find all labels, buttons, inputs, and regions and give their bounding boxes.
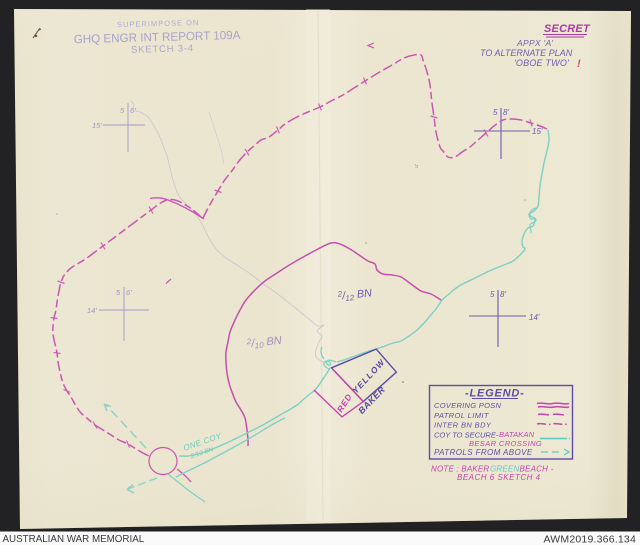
svg-text:BATAKAN: BATAKAN xyxy=(499,430,535,439)
svg-text:6': 6' xyxy=(126,288,132,297)
svg-text:AUSTRALIAN WAR MEMORIAL: AUSTRALIAN WAR MEMORIAL xyxy=(3,534,145,545)
svg-text:PATROLS FROM ABOVE: PATROLS FROM ABOVE xyxy=(434,448,533,457)
svg-text:INTER BN BDY: INTER BN BDY xyxy=(434,421,492,430)
svg-text:8': 8' xyxy=(500,290,506,299)
svg-text:15': 15' xyxy=(532,127,543,136)
svg-text:AWM2019.366.134: AWM2019.366.134 xyxy=(543,534,636,545)
svg-text:APPX 'A': APPX 'A' xyxy=(516,38,553,48)
svg-text:14': 14' xyxy=(529,313,540,322)
svg-text:TO ALTERNATE PLAN: TO ALTERNATE PLAN xyxy=(480,48,573,58)
svg-text:-LEGEND-: -LEGEND- xyxy=(465,388,525,400)
svg-text:SKETCH 3-4: SKETCH 3-4 xyxy=(131,43,194,56)
svg-text:BESAR CROSSING: BESAR CROSSING xyxy=(469,439,542,448)
svg-text:COVERING POSN: COVERING POSN xyxy=(434,401,502,410)
svg-text:'OBOE TWO': 'OBOE TWO' xyxy=(514,58,569,68)
svg-text:15': 15' xyxy=(92,121,102,130)
svg-text:PATROL LIMIT: PATROL LIMIT xyxy=(434,411,490,420)
svg-text:5: 5 xyxy=(490,290,495,299)
svg-text:BEACH 6 SKETCH 4: BEACH 6 SKETCH 4 xyxy=(457,473,541,482)
svg-text:5: 5 xyxy=(493,108,498,117)
svg-text:8': 8' xyxy=(503,108,509,117)
svg-text:!: ! xyxy=(577,58,581,70)
svg-text:14': 14' xyxy=(87,306,97,315)
svg-text:SECRET: SECRET xyxy=(544,23,591,35)
